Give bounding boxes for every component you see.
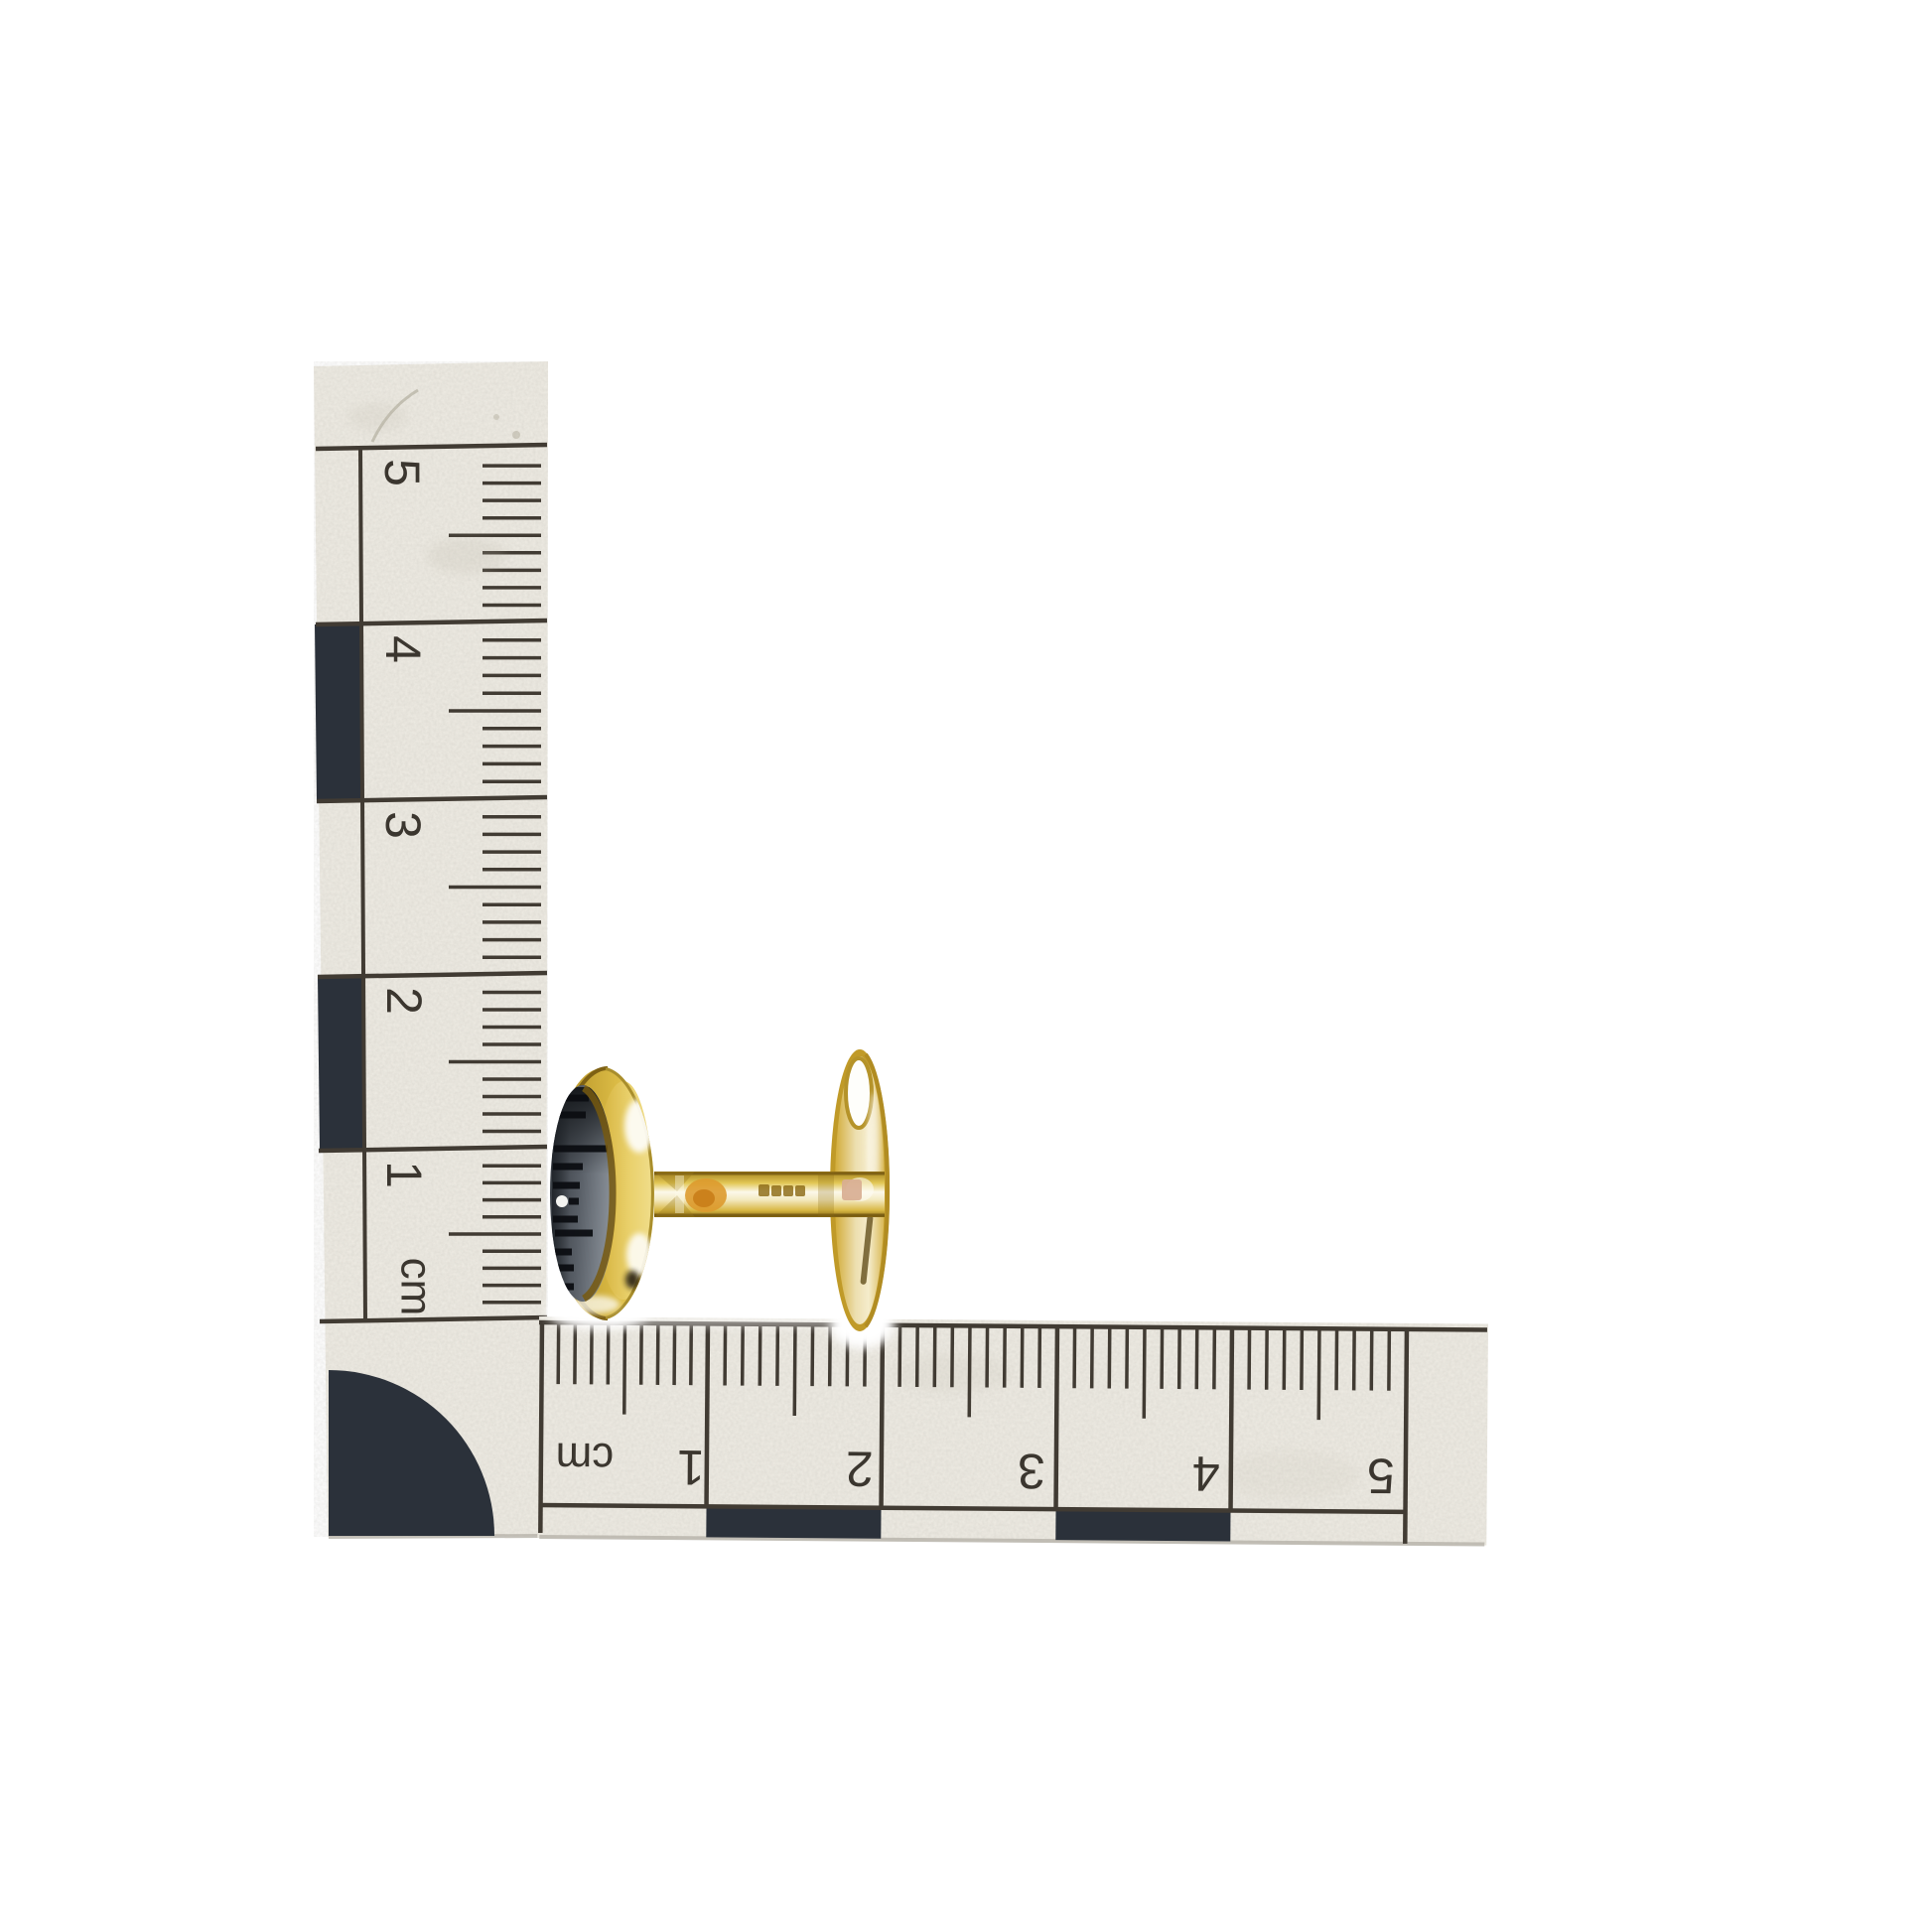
svg-text:3: 3	[375, 811, 431, 839]
svg-text:3: 3	[1018, 1444, 1045, 1499]
svg-text:4: 4	[375, 635, 431, 663]
svg-text:2: 2	[376, 987, 432, 1015]
svg-text:cm: cm	[555, 1434, 614, 1482]
svg-text:4: 4	[1192, 1446, 1220, 1501]
svg-text:5: 5	[374, 459, 430, 486]
svg-text:cm: cm	[392, 1258, 441, 1316]
svg-text:2: 2	[846, 1441, 874, 1496]
svg-text:1: 1	[376, 1161, 432, 1188]
svg-text:1: 1	[677, 1440, 705, 1495]
svg-text:5: 5	[1367, 1449, 1395, 1504]
